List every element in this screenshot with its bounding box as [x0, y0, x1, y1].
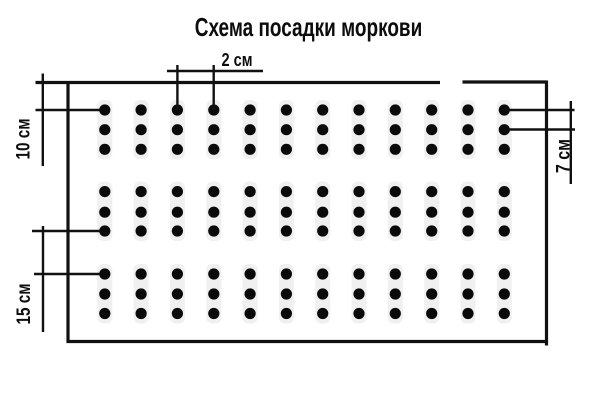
svg-text:Схема посадки моркови: Схема посадки моркови — [195, 12, 423, 42]
svg-text:10 см: 10 см — [13, 119, 35, 160]
svg-text:15 см: 15 см — [13, 284, 35, 325]
svg-text:2 см: 2 см — [222, 50, 253, 70]
svg-text:7 см: 7 см — [553, 139, 575, 173]
